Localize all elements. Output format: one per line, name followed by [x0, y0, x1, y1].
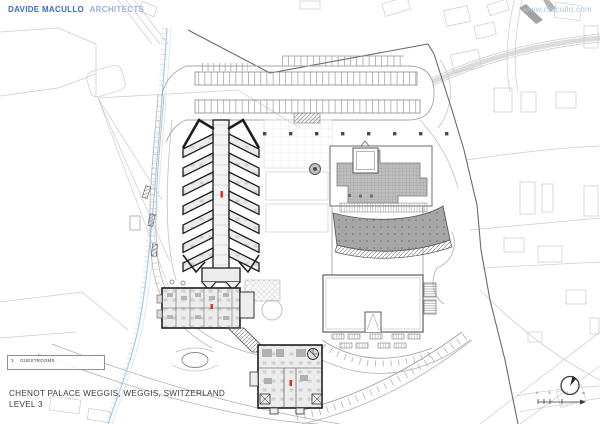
spa-building [157, 288, 268, 352]
guestroom-units-left [183, 134, 213, 272]
scale-label-5: 5 [549, 391, 551, 395]
scale-label-0: 0 [536, 391, 538, 395]
scale-label-10: 10 [564, 391, 568, 395]
pergola [294, 113, 320, 123]
scale-bar-labels: 0 5 10 m [536, 391, 596, 399]
drawing-sheet: DAVIDE MACULLO ARCHITECTS www.macullo.co… [0, 0, 600, 424]
planter-dots [263, 132, 448, 135]
guestrooms-building [130, 120, 259, 290]
entry-block [202, 268, 240, 282]
legend-key-number: 3 [11, 358, 14, 363]
title-block: CHENOT PALACE WEGGIS, WEGGIS, SWITZERLAN… [9, 388, 225, 410]
level-label: LEVEL 3 [9, 399, 225, 410]
brand-name: DAVIDE MACULLO [8, 5, 84, 14]
fan-roof [333, 206, 450, 251]
terrace-steps [340, 203, 427, 212]
legend-box: 3 GUESTROOMS [7, 355, 105, 370]
scale-label-unit: m [582, 391, 585, 395]
brand-suffix: ARCHITECTS [90, 5, 145, 14]
stair-east [424, 283, 436, 297]
legend-key-label: GUESTROOMS [20, 358, 55, 363]
level-marker [211, 304, 214, 309]
sheet-header: DAVIDE MACULLO ARCHITECTS [8, 5, 144, 14]
pond [182, 353, 208, 368]
level-marker [221, 191, 224, 198]
stream [106, 28, 171, 424]
scale-bar [538, 399, 586, 405]
pool-building [250, 345, 322, 414]
project-title: CHENOT PALACE WEGGIS, WEGGIS, SWITZERLAN… [9, 388, 225, 399]
skylights [332, 334, 420, 348]
website-link: www.macullo.com [523, 5, 592, 14]
level-marker [290, 380, 293, 386]
guestroom-units-right [229, 134, 259, 272]
main-building [322, 141, 452, 364]
